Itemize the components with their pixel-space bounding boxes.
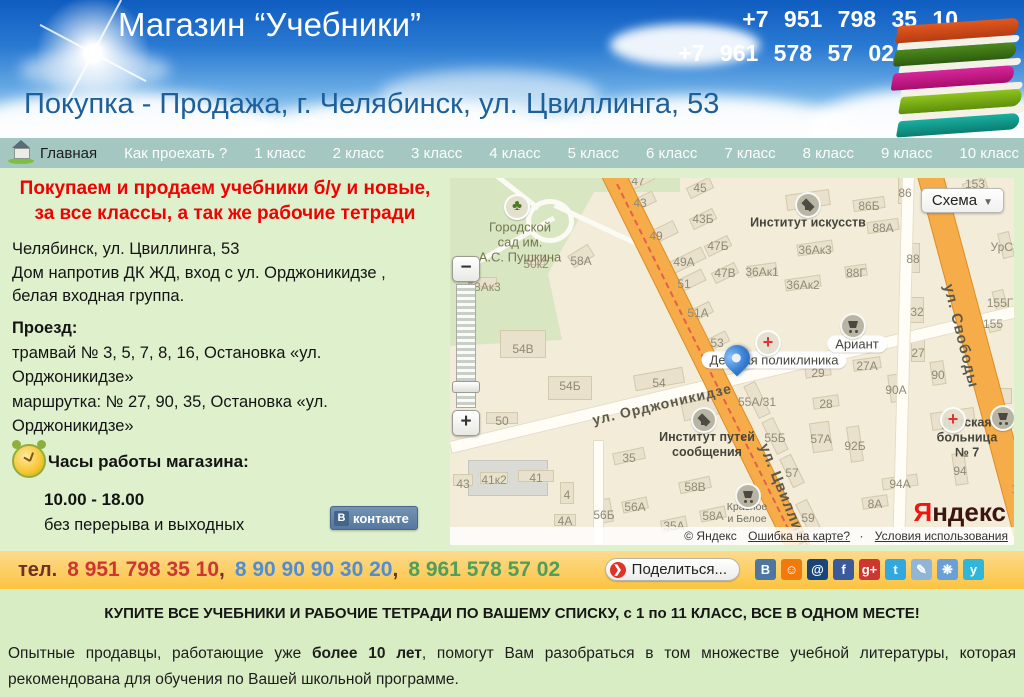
vk-icon: В — [334, 511, 349, 526]
map-house-number: 155Г — [987, 296, 1014, 310]
map-house-number: 86 — [898, 186, 911, 200]
cross-icon: + — [940, 407, 966, 433]
site-subtitle: Покупка - Продажа, г. Челябинск, ул. Цви… — [24, 88, 719, 121]
map-house-number: 88 — [906, 252, 919, 266]
cap-icon — [795, 192, 821, 218]
hours-value: 10.00 - 18.00 — [44, 490, 144, 510]
transit-line: маршрутка: № 27, 90, 35, Остановка «ул. … — [12, 390, 432, 439]
map-house-number: 88Г — [846, 266, 866, 280]
map-house-number: 49А — [673, 255, 694, 269]
phone-separator: , — [219, 558, 225, 581]
map-house-number: 50 — [495, 414, 508, 428]
share-widget: ❯ Поделиться... В☺@fg+t✎❋y — [605, 558, 984, 581]
site-title: Магазин “Учебники” — [118, 6, 421, 44]
map-house-number: 28 — [819, 397, 832, 411]
address-line: Челябинск, ул. Цвиллинга, 53 — [12, 238, 386, 262]
address-block: Челябинск, ул. Цвиллинга, 53Дом напротив… — [12, 238, 386, 309]
map-mode-label: Схема — [932, 192, 977, 209]
content: Покупаем и продаем учебники б/у и новые,… — [0, 168, 1024, 551]
map-house-number: 58А — [702, 509, 723, 523]
map-error-link[interactable]: Ошибка на карте? — [748, 529, 850, 543]
nav-item-3-klass[interactable]: 3 класс — [411, 145, 462, 162]
cap-icon — [691, 407, 717, 433]
home-icon — [10, 145, 32, 161]
footer-text: Опытные продавцы, работающие уже — [8, 645, 312, 662]
share-button-label: Поделиться... — [632, 561, 727, 578]
map-house-number: 35 — [622, 451, 635, 465]
nav-item-1-klass[interactable]: 1 класс — [254, 145, 305, 162]
cross-icon: + — [755, 330, 781, 356]
map-house-number: 55А/31 — [738, 395, 776, 409]
header-phone-2: +7 961 578 57 02 — [678, 40, 894, 67]
map-house-number: 27А — [856, 359, 877, 373]
footer-headline: КУПИТЕ ВСЕ УЧЕБНИКИ И РАБОЧИЕ ТЕТРАДИ ПО… — [0, 605, 1024, 622]
alarm-clock-icon — [12, 444, 46, 478]
map-house-number: 58А — [570, 254, 591, 268]
nav-item-6-klass[interactable]: 6 класс — [646, 145, 697, 162]
map-house-number: 53 — [710, 336, 723, 350]
map-house-number: 4А — [558, 514, 573, 528]
yandex-map[interactable]: 47454343Б4947Б49А47В5150к258А58Ак351А54В… — [450, 178, 1014, 545]
yandex-logo-rest: ндекс — [932, 497, 1006, 527]
contact-phone-3: 8 961 578 57 02 — [408, 558, 560, 581]
map-house-number: 36Ак2 — [786, 278, 819, 292]
map-zoom-control: − + — [452, 256, 482, 436]
vk-button-label: контакте — [353, 511, 409, 526]
map-house-number: 58В — [684, 480, 705, 494]
nav-items: Как проехать ?1 класс2 класс3 класс4 кла… — [97, 145, 1024, 162]
hours-note: без перерыва и выходных — [44, 516, 244, 535]
map-house-number: 155 — [983, 317, 1003, 331]
map-terms-link[interactable]: Условия использования — [875, 529, 1008, 543]
nav-item-4-klass[interactable]: 4 класс — [489, 145, 540, 162]
map-house-number: 51 — [677, 277, 690, 291]
nav-item-8-klass[interactable]: 8 класс — [803, 145, 854, 162]
map-house-number: 47Б — [707, 239, 728, 253]
map-house-number: 27 — [911, 346, 924, 360]
phone-numbers: 8 951 798 35 10,8 90 90 90 30 20,8 961 5… — [57, 558, 560, 582]
map-copyright: © Яндекс — [684, 529, 737, 543]
map-house-number: 51А — [687, 306, 708, 320]
nav-item-home[interactable]: Главная — [10, 145, 97, 162]
transit-lines: трамвай № 3, 5, 7, 8, 16, Остановка «ул.… — [12, 341, 432, 439]
zoom-out-button[interactable]: − — [452, 256, 480, 282]
books-stack-image — [886, 17, 1024, 138]
map-house-number: 88А — [872, 221, 893, 235]
map-house-number: 43Б — [692, 212, 713, 226]
address-line: белая входная группа. — [12, 285, 386, 309]
map-house-number: 43 — [633, 196, 646, 210]
header-banner: Магазин “Учебники” +7 951 798 35 10 +7 9… — [0, 0, 1024, 138]
mail-ru-icon[interactable]: @ — [807, 559, 828, 580]
map-house-number: 15 — [1011, 482, 1014, 496]
map-house-number: 57А — [810, 432, 831, 446]
footer: КУПИТЕ ВСЕ УЧЕБНИКИ И РАБОЧИЕ ТЕТРАДИ ПО… — [0, 589, 1024, 697]
contact-bar: тел. 8 951 798 35 10,8 90 90 90 30 20,8 … — [0, 551, 1024, 589]
cart-icon — [990, 405, 1014, 431]
footer-paragraph: Опытные продавцы, работающие уже более 1… — [8, 641, 1016, 693]
map-house-number: 49 — [649, 229, 662, 243]
tel-label: тел. — [18, 559, 57, 582]
main-nav: Главная Как проехать ?1 класс2 класс3 кл… — [0, 138, 1024, 168]
address-line: Дом напротив ДК ЖД, вход с ул. Орджоники… — [12, 262, 386, 286]
page: Магазин “Учебники” +7 951 798 35 10 +7 9… — [0, 0, 1024, 697]
bird-icon[interactable]: y — [963, 559, 984, 580]
zoom-in-button[interactable]: + — [452, 410, 480, 436]
map-house-number: 94 — [953, 464, 966, 478]
map-house-number: 57 — [785, 466, 798, 480]
livejournal-icon[interactable]: ✎ — [911, 559, 932, 580]
yandex-logo: Яндекс — [914, 499, 1007, 525]
map-house-number: 47 — [631, 178, 644, 188]
tree-icon: ♣ — [504, 194, 530, 220]
map-house-number: 56Б — [593, 508, 614, 522]
nav-item-2-klass[interactable]: 2 класс — [333, 145, 384, 162]
chevron-down-icon: ▼ — [983, 197, 993, 208]
nav-item-route[interactable]: Как проехать ? — [124, 145, 227, 162]
twitter-icon[interactable]: t — [885, 559, 906, 580]
map-house-number: 56А — [624, 500, 645, 514]
contact-phone-2: 8 90 90 90 30 20 — [235, 558, 393, 581]
map-house-number: 94А — [889, 477, 910, 491]
contact-phone-1: 8 951 798 35 10 — [67, 558, 219, 581]
transit-block: Проезд: трамвай № 3, 5, 7, 8, 16, Остано… — [12, 316, 432, 439]
map-house-number: 41к2 — [481, 473, 506, 487]
map-house-number: 90 — [931, 368, 944, 382]
liveinternet-icon[interactable]: ❋ — [937, 559, 958, 580]
odnoklassniki-icon[interactable]: ☺ — [781, 559, 802, 580]
zoom-slider-handle[interactable] — [452, 381, 480, 393]
map-house-number: 36Ак1 — [745, 265, 778, 279]
map-house-number: 92Б — [844, 439, 865, 453]
social-icons: В☺@fg+t✎❋y — [750, 559, 984, 580]
phone-separator: , — [393, 558, 399, 581]
vkontakte-button[interactable]: В контакте — [330, 506, 418, 530]
nav-item-7-klass[interactable]: 7 класс — [724, 145, 775, 162]
share-icon: ❯ — [610, 562, 626, 578]
map-house-number: 8А — [868, 497, 883, 511]
map-house-number: 54В — [512, 342, 533, 356]
map-mode-button[interactable]: Схема▼ — [921, 188, 1004, 213]
share-button[interactable]: ❯ Поделиться... — [605, 558, 740, 581]
cart-icon — [735, 483, 761, 509]
map-house-number: 4 — [564, 488, 571, 502]
cart-icon — [840, 313, 866, 339]
map-place-label: Институт путей сообщения — [659, 430, 755, 460]
nav-item-10-klass[interactable]: 10 класс — [959, 145, 1019, 162]
facebook-icon[interactable]: f — [833, 559, 854, 580]
nav-item-9-klass[interactable]: 9 класс — [881, 145, 932, 162]
cloud-graphic — [20, 50, 170, 90]
map-house-number: 32 — [910, 305, 923, 319]
map-attribution: © Яндекс Ошибка на карте? · Условия испо… — [450, 527, 1014, 545]
promo-text: Покупаем и продаем учебники б/у и новые,… — [0, 176, 450, 226]
info-panel: Покупаем и продаем учебники б/у и новые,… — [0, 168, 450, 551]
hours-title: Часы работы магазина: — [48, 452, 249, 472]
map-house-number: 47В — [714, 266, 735, 280]
map-house-number: УрСЭ — [991, 240, 1014, 254]
footer-text-bold: более 10 лет — [312, 645, 422, 662]
map-house-number: 36Ак3 — [798, 243, 831, 257]
map-place-label: Городской сад им. А.С. Пушкина — [479, 220, 562, 265]
nav-home-label: Главная — [40, 145, 97, 162]
map-house-number: 54Б — [559, 379, 580, 393]
map-house-number: 90А — [885, 383, 906, 397]
map-house-number: 41 — [529, 471, 542, 485]
transit-line: трамвай № 3, 5, 7, 8, 16, Остановка «ул.… — [12, 341, 432, 390]
map-house-number: 45 — [693, 181, 706, 195]
yandex-logo-first: Я — [914, 497, 933, 527]
zoom-slider-track[interactable] — [456, 284, 476, 408]
nav-item-5-klass[interactable]: 5 класс — [568, 145, 619, 162]
map-house-number: 54 — [652, 376, 665, 390]
map-house-number: 43 — [456, 477, 469, 491]
google-plus-icon[interactable]: g+ — [859, 559, 880, 580]
map-house-number: 86Б — [858, 199, 879, 213]
vk-icon[interactable]: В — [755, 559, 776, 580]
separator-dot: · — [859, 529, 863, 543]
transit-title: Проезд: — [12, 316, 432, 341]
